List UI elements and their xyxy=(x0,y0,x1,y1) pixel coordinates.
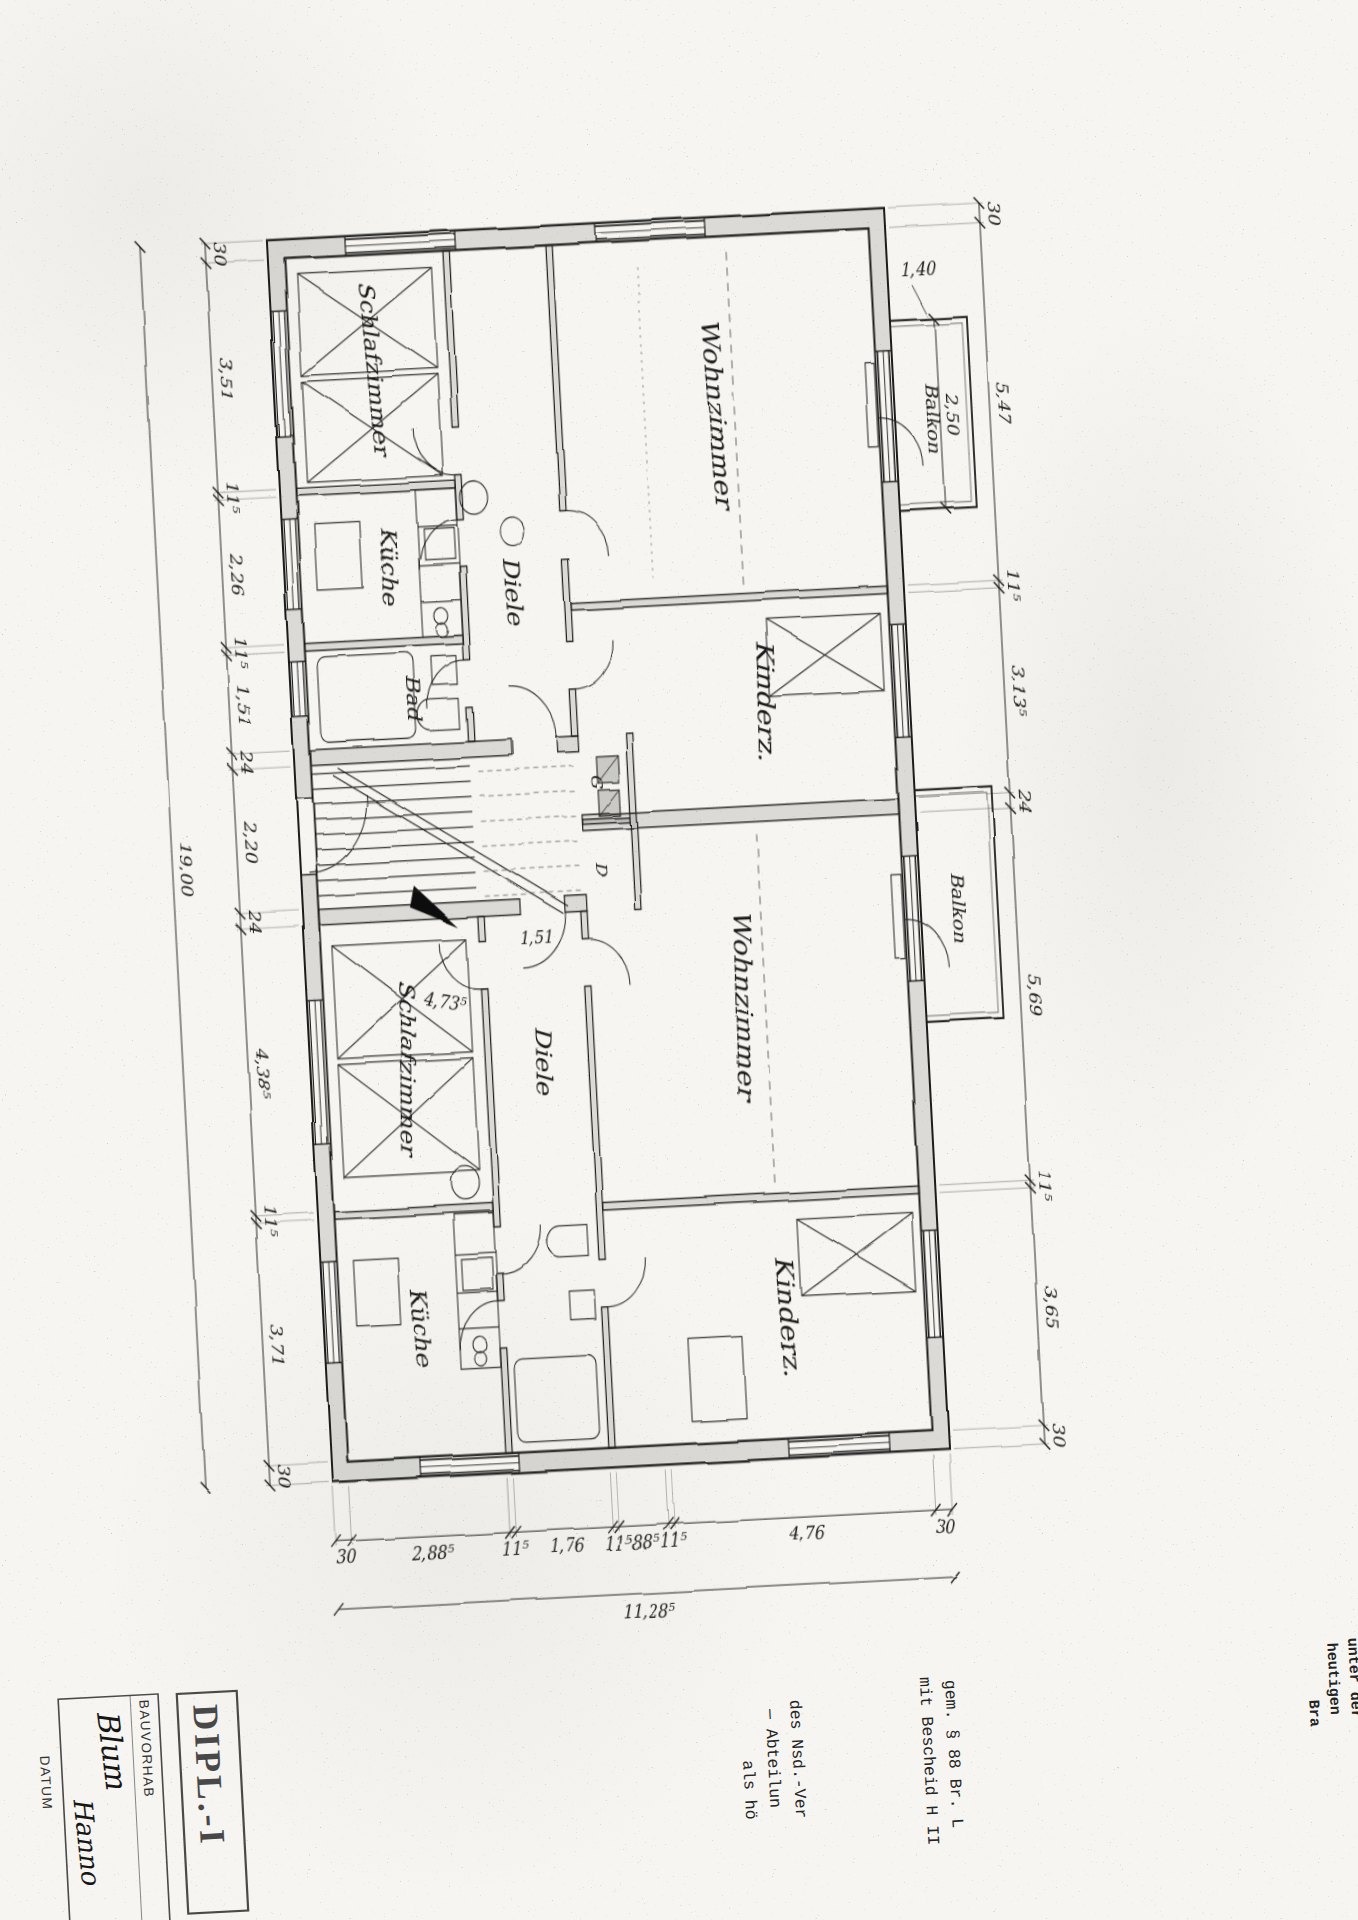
floor-plan-drawing: Wohnzimmer Kinderz. Schlafzimmer Küche B… xyxy=(0,0,1358,1920)
scan-grain xyxy=(0,0,1358,1920)
scanned-floor-plan-page: { "rooms": { "apartment1": { "wohnzimmer… xyxy=(0,0,1358,1920)
